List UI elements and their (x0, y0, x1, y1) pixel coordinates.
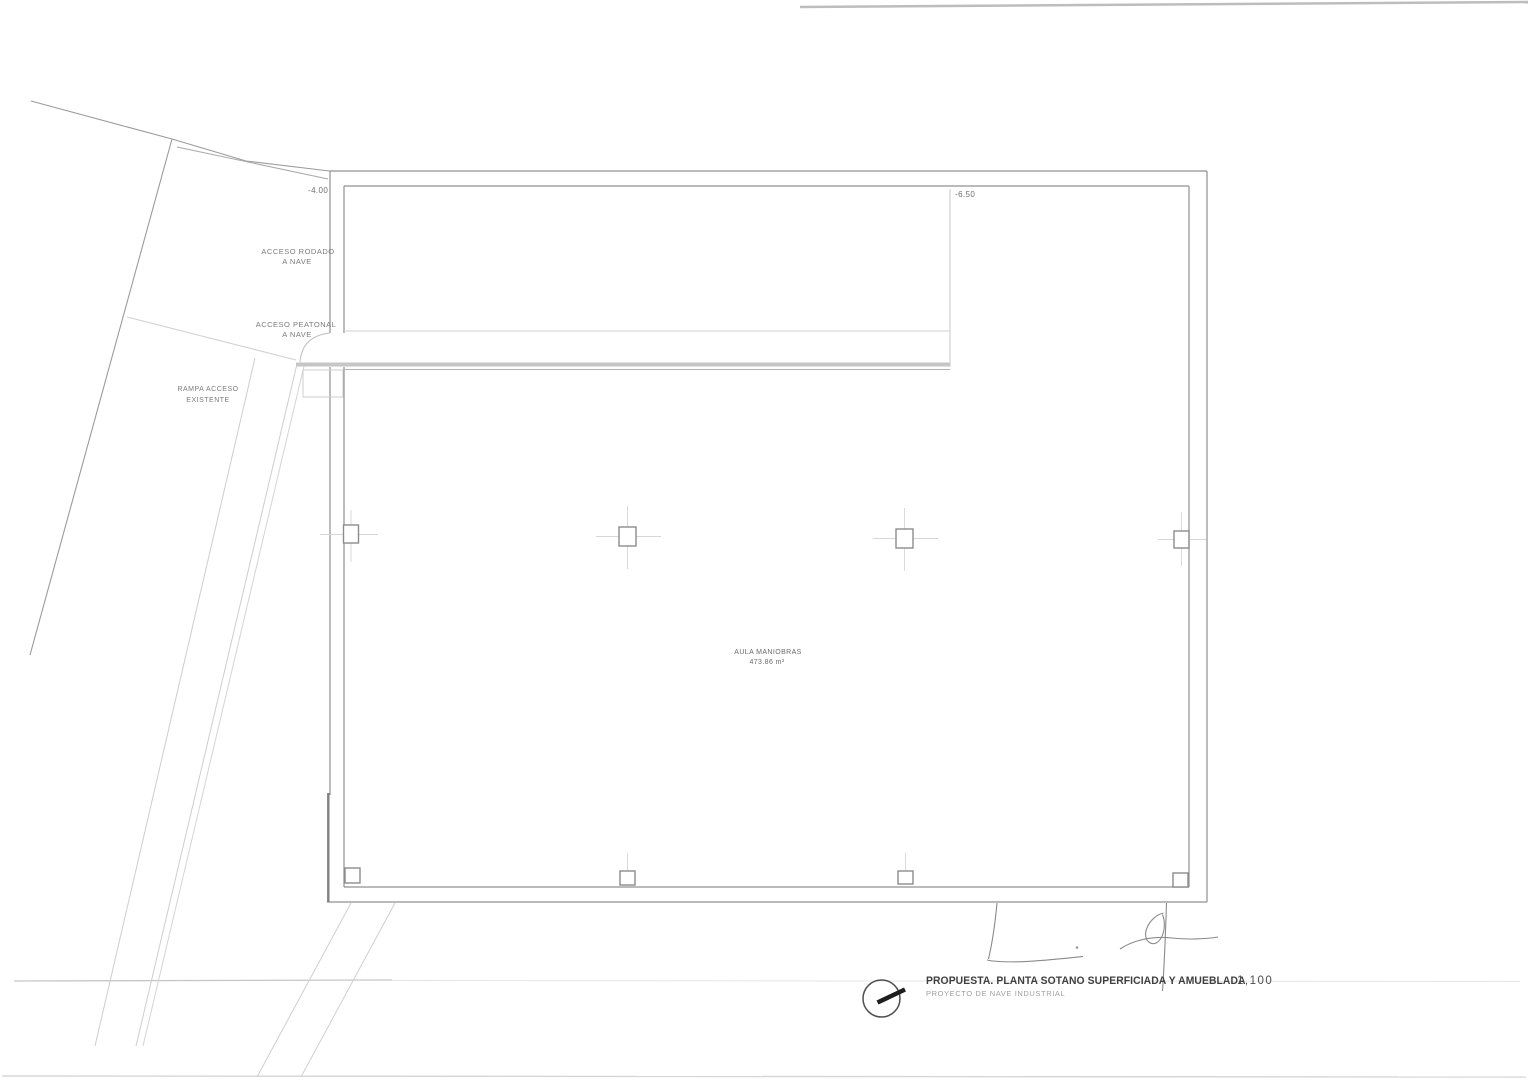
sheet-subtitle: PROYECTO DE NAVE INDUSTRIAL (926, 990, 1065, 998)
column-marker (1174, 531, 1189, 548)
column-marker (619, 527, 636, 546)
plan-linework (0, 0, 1528, 1080)
label-acceso-rodado-line2: A NAVE (282, 258, 312, 266)
column-marker (344, 525, 359, 543)
signature-left (987, 946, 1083, 962)
column-marker (896, 529, 913, 548)
sheet-title: PROPUESTA. PLANTA SOTANO SUPERFICIADA Y … (926, 976, 1246, 987)
stair-landing (303, 370, 343, 397)
north-compass-icon (863, 980, 905, 1017)
column-marker (620, 871, 635, 885)
column-marker (1173, 873, 1188, 887)
signature-right (1120, 913, 1218, 949)
building-walls (327, 171, 1207, 902)
label-acceso-peatonal-line2: A NAVE (282, 331, 312, 339)
level-annotation-left: -4.00 (308, 187, 328, 195)
page-edge-lines (2, 2, 1528, 1077)
label-rampa-existente-line2: EXISTENTE (186, 397, 229, 404)
level-annotation-right: -6.50 (955, 191, 975, 199)
column-marker (898, 871, 913, 884)
columns-grid (320, 506, 1206, 887)
label-rampa-existente-line1: RAMPA ACCESO (177, 386, 238, 393)
interior-ramp (296, 189, 950, 370)
room-area: 473.86 m² (749, 659, 784, 666)
column-marker (345, 868, 360, 883)
label-acceso-rodado-line1: ACCESO RODADO (261, 248, 334, 256)
label-acceso-peatonal-line1: ACCESO PEATONAL (256, 321, 337, 329)
room-label: AULA MANIOBRAS (734, 649, 801, 656)
site-boundary (30, 101, 330, 655)
floorplan-sheet: -4.00 -6.50 ACCESO RODADO A NAVE ACCESO … (0, 0, 1528, 1080)
ramp-lines (95, 317, 395, 1077)
sheet-scale: 1,100 (1237, 976, 1273, 988)
